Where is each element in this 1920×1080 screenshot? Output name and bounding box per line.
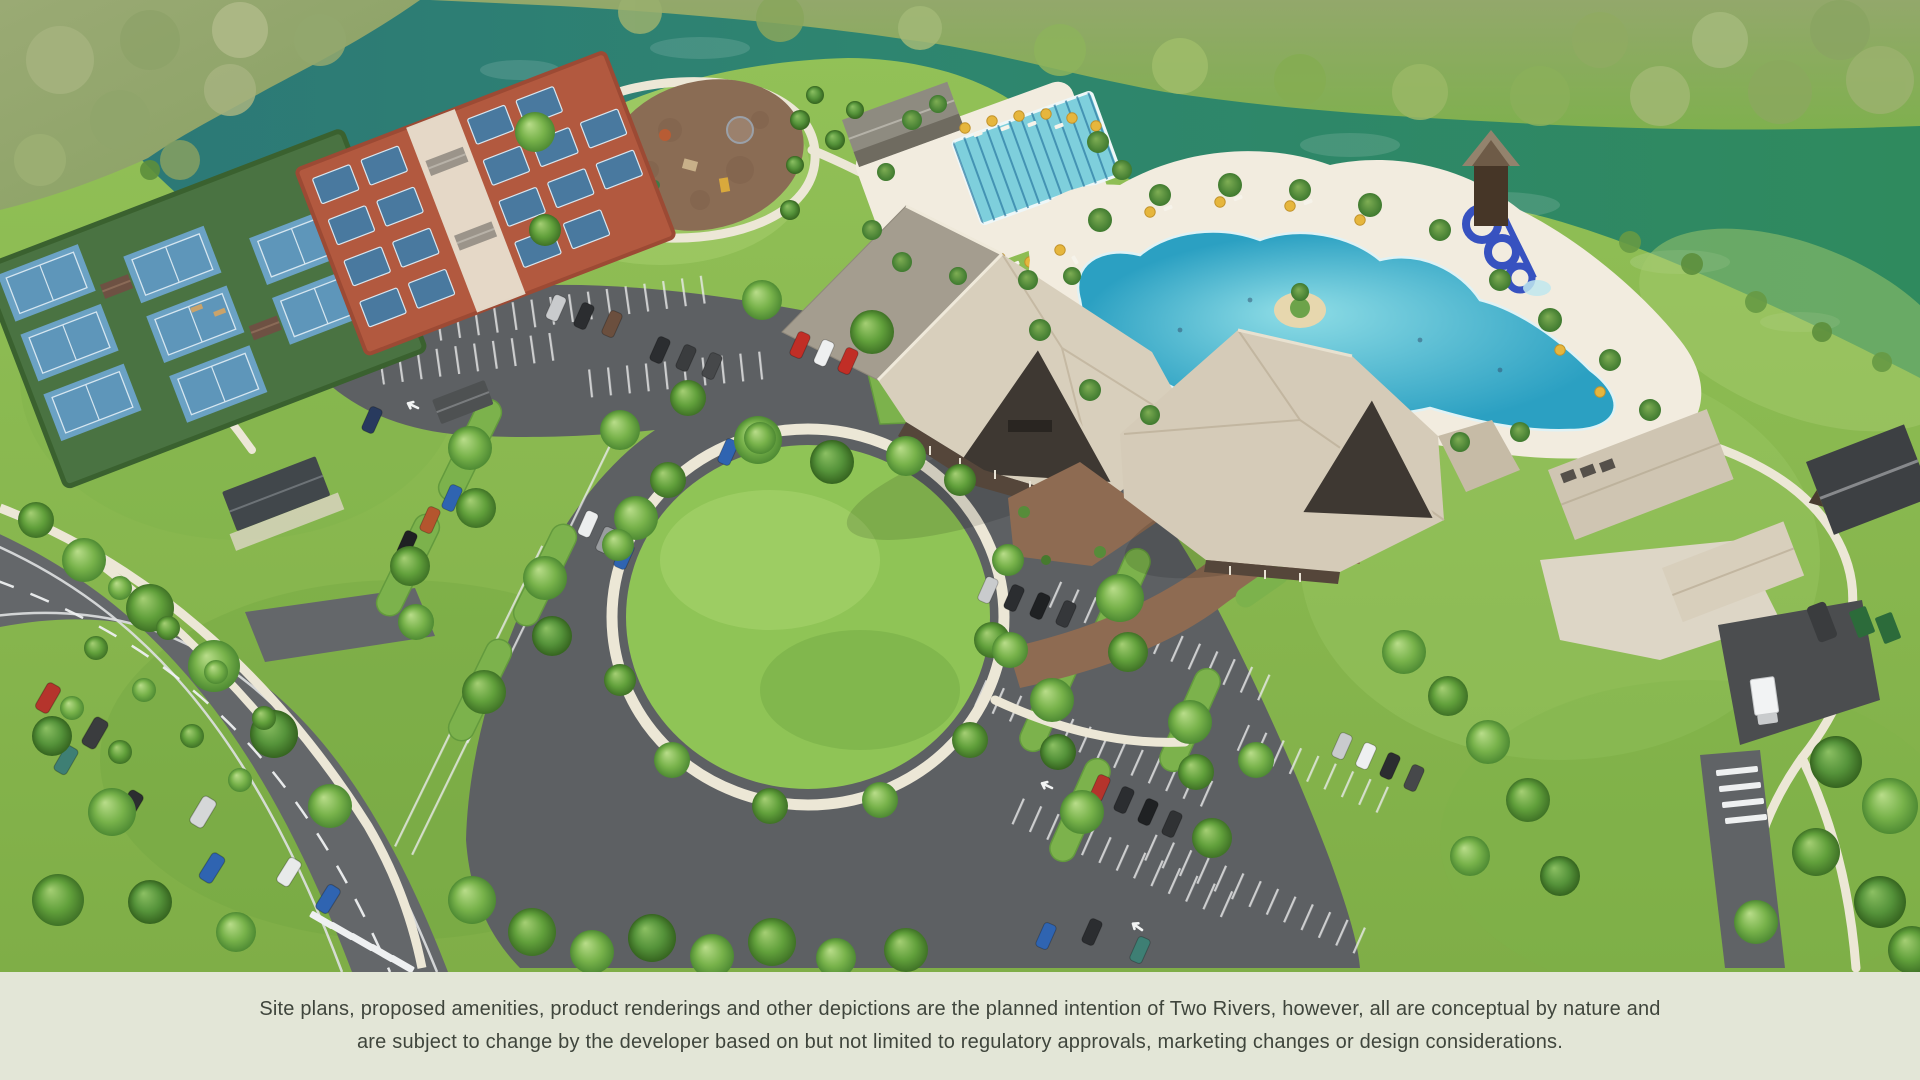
site-plan-rendering: [0, 0, 1920, 972]
page: Site plans, proposed amenities, product …: [0, 0, 1920, 1080]
disclaimer-band: Site plans, proposed amenities, product …: [0, 972, 1920, 1080]
site-rendering: [0, 0, 1920, 972]
disclaimer-line-2: are subject to change by the developer b…: [357, 1029, 1563, 1056]
climbing-dome: [727, 117, 753, 143]
disclaimer-line-1: Site plans, proposed amenities, product …: [259, 996, 1660, 1023]
